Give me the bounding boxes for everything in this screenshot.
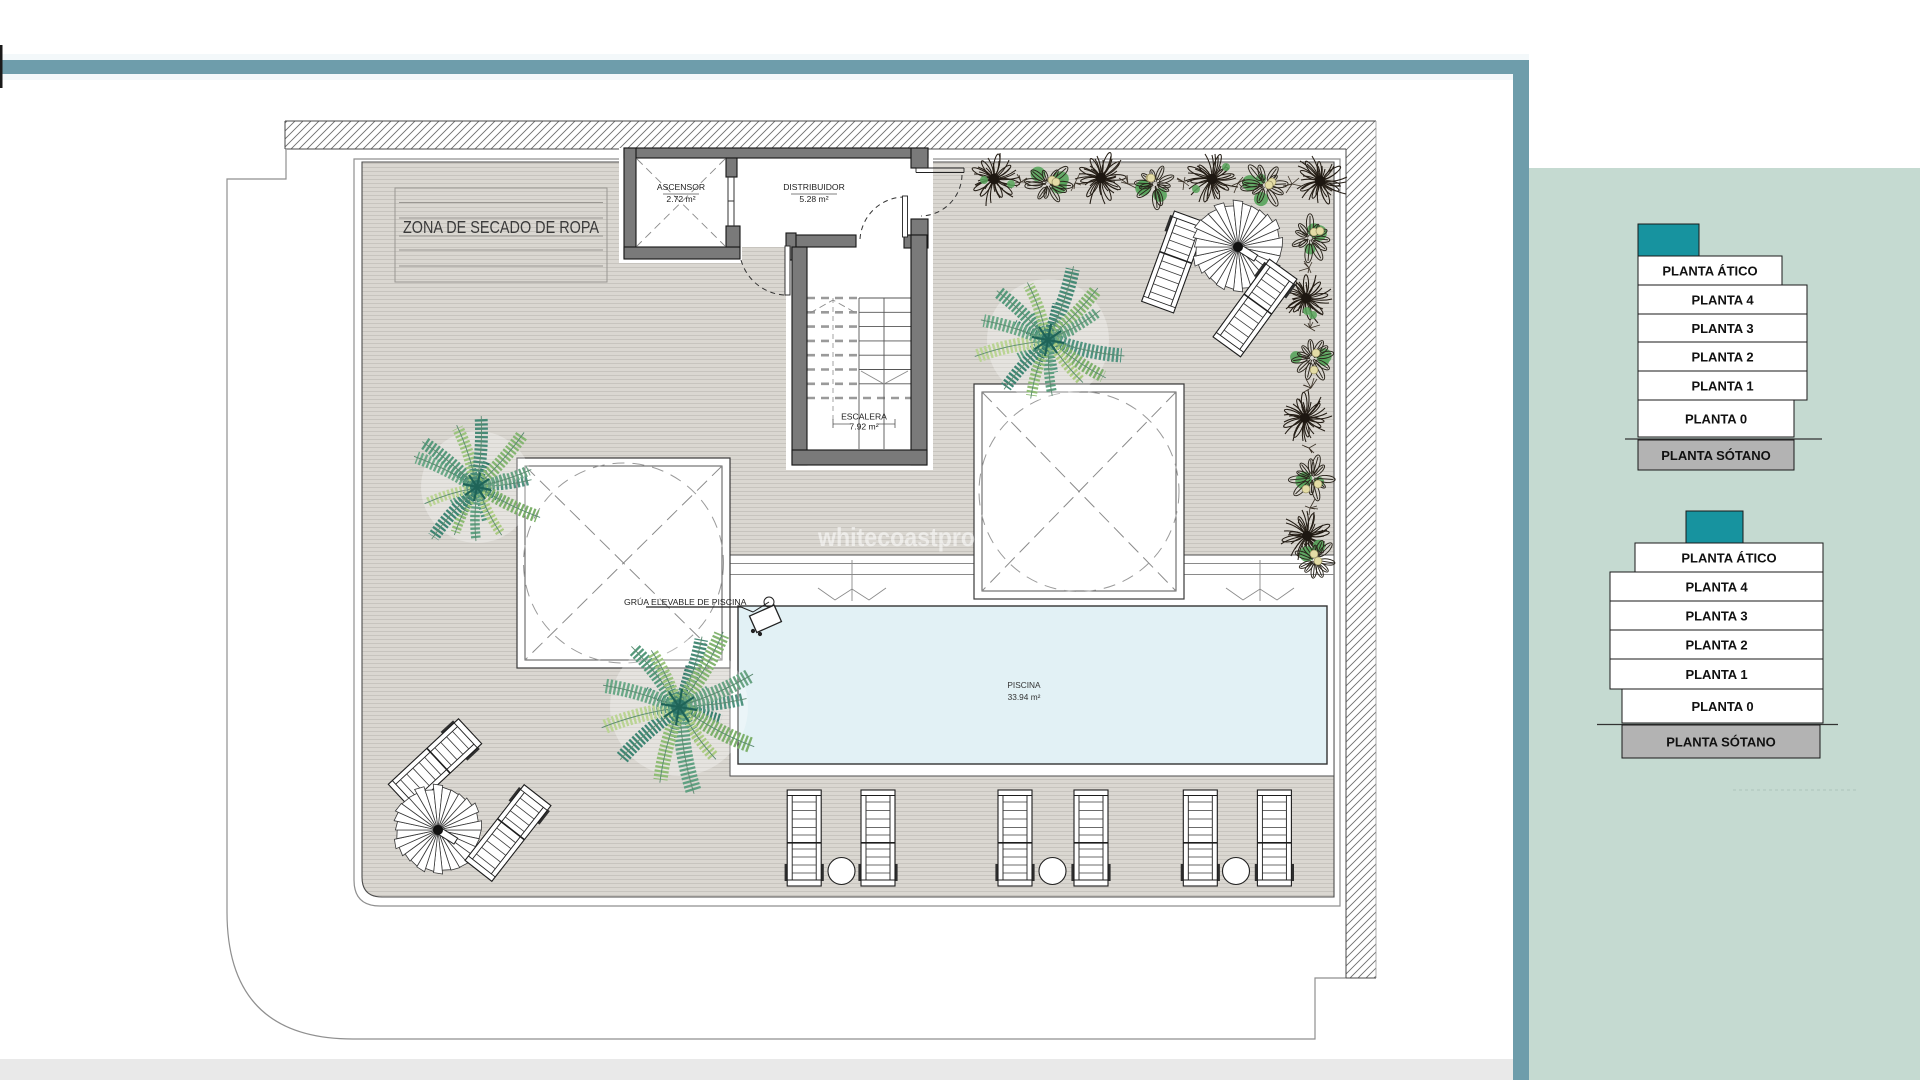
- svg-text:PLANTA 3: PLANTA 3: [1691, 321, 1753, 336]
- svg-text:PLANTA SÓTANO: PLANTA SÓTANO: [1661, 448, 1771, 463]
- svg-text:PLANTA 4: PLANTA 4: [1691, 293, 1754, 308]
- svg-text:PLANTA 0: PLANTA 0: [1691, 699, 1753, 714]
- svg-text:PLANTA 0: PLANTA 0: [1685, 412, 1747, 427]
- svg-text:ZONA DE SECADO DE ROPA: ZONA DE SECADO DE ROPA: [403, 217, 599, 237]
- svg-text:PLANTA SÓTANO: PLANTA SÓTANO: [1666, 735, 1776, 750]
- svg-text:ASCENSOR: ASCENSOR: [657, 182, 705, 192]
- svg-text:PLANTA 1: PLANTA 1: [1691, 379, 1753, 394]
- svg-text:whitecoastpro: whitecoastpro: [817, 522, 975, 552]
- svg-text:PLANTA 3: PLANTA 3: [1685, 609, 1747, 624]
- svg-text:PLANTA 1: PLANTA 1: [1685, 667, 1747, 682]
- svg-text:PLANTA 2: PLANTA 2: [1691, 350, 1753, 365]
- svg-text:2.72 m²: 2.72 m²: [666, 194, 695, 204]
- svg-text:7.92 m²: 7.92 m²: [849, 422, 878, 432]
- svg-text:ESCALERA: ESCALERA: [841, 412, 887, 422]
- svg-text:GRÚA ELEVABLE DE PISCINA: GRÚA ELEVABLE DE PISCINA: [624, 597, 747, 607]
- svg-text:PISCINA: PISCINA: [1007, 680, 1041, 690]
- svg-text:33.94 m²: 33.94 m²: [1008, 692, 1041, 702]
- svg-text:PLANTA 4: PLANTA 4: [1685, 580, 1748, 595]
- svg-text:PLANTA ÁTICO: PLANTA ÁTICO: [1681, 551, 1776, 566]
- svg-text:PLANTA 2: PLANTA 2: [1685, 638, 1747, 653]
- svg-text:5.28 m²: 5.28 m²: [799, 194, 828, 204]
- svg-text:DISTRIBUIDOR: DISTRIBUIDOR: [783, 182, 845, 192]
- svg-text:PLANTA ÁTICO: PLANTA ÁTICO: [1662, 264, 1757, 279]
